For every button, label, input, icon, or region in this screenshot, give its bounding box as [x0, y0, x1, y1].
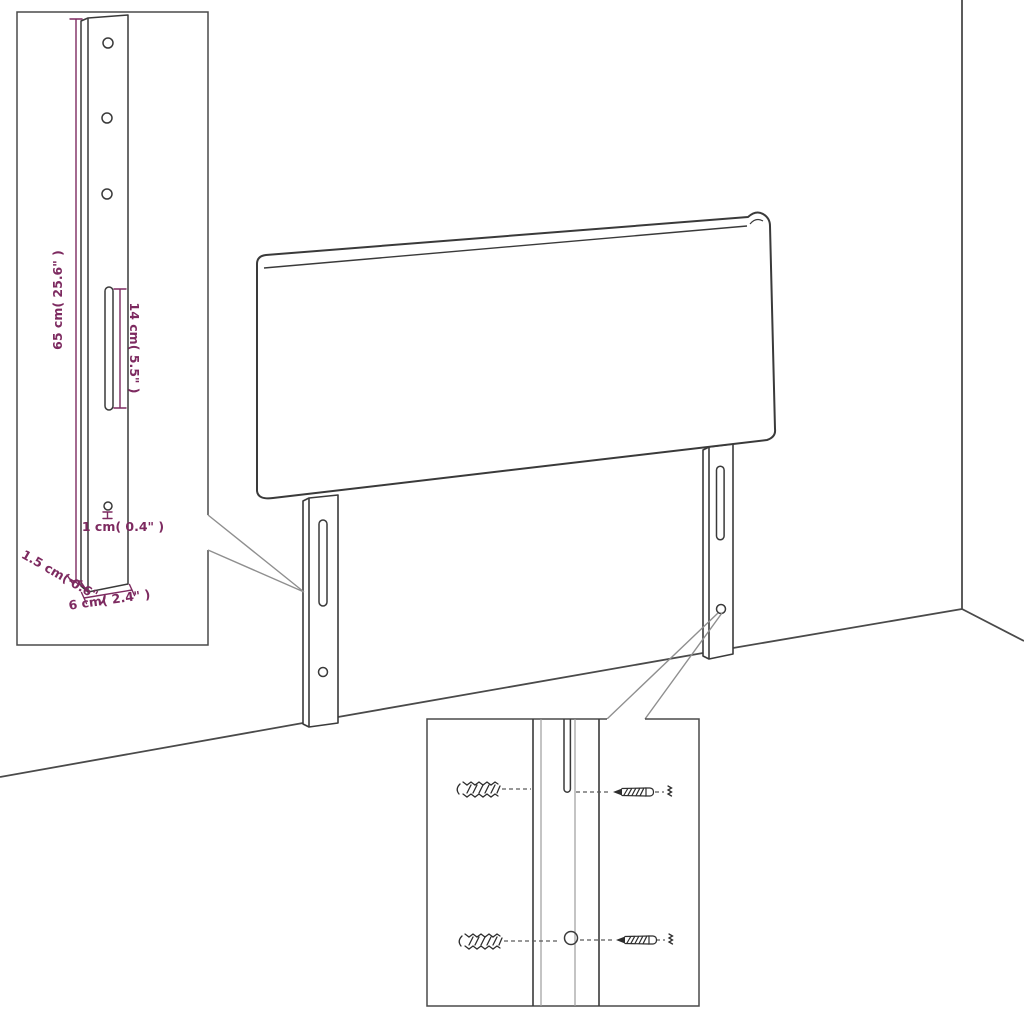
floor-line-right	[962, 609, 1024, 641]
right-leg-body	[703, 444, 733, 659]
panel-outline	[257, 213, 775, 499]
headboard-panel	[257, 213, 775, 499]
dim-slot-label: 14 cm( 5.5" )	[127, 303, 142, 394]
bracket-callout-lines	[208, 515, 304, 592]
dim-height-label: 65 cm( 25.6" )	[50, 250, 65, 350]
mounting-bracket-icon	[81, 15, 128, 592]
dim-hole-label: 1 cm( 0.4" )	[82, 519, 164, 534]
hardware-inset-background	[427, 719, 699, 1006]
diagram-page: 65 cm( 25.6" ) 14 cm( 5.5" ) 1 cm( 0.4" …	[0, 0, 1024, 1024]
bracket-detail-inset: 65 cm( 25.6" ) 14 cm( 5.5" ) 1 cm( 0.4" …	[17, 12, 208, 645]
headboard-diagram: 65 cm( 25.6" ) 14 cm( 5.5" ) 1 cm( 0.4" …	[0, 0, 1024, 1024]
headboard-left-leg	[303, 495, 338, 727]
hardware-detail-inset	[427, 719, 699, 1006]
headboard-right-leg	[703, 444, 733, 659]
